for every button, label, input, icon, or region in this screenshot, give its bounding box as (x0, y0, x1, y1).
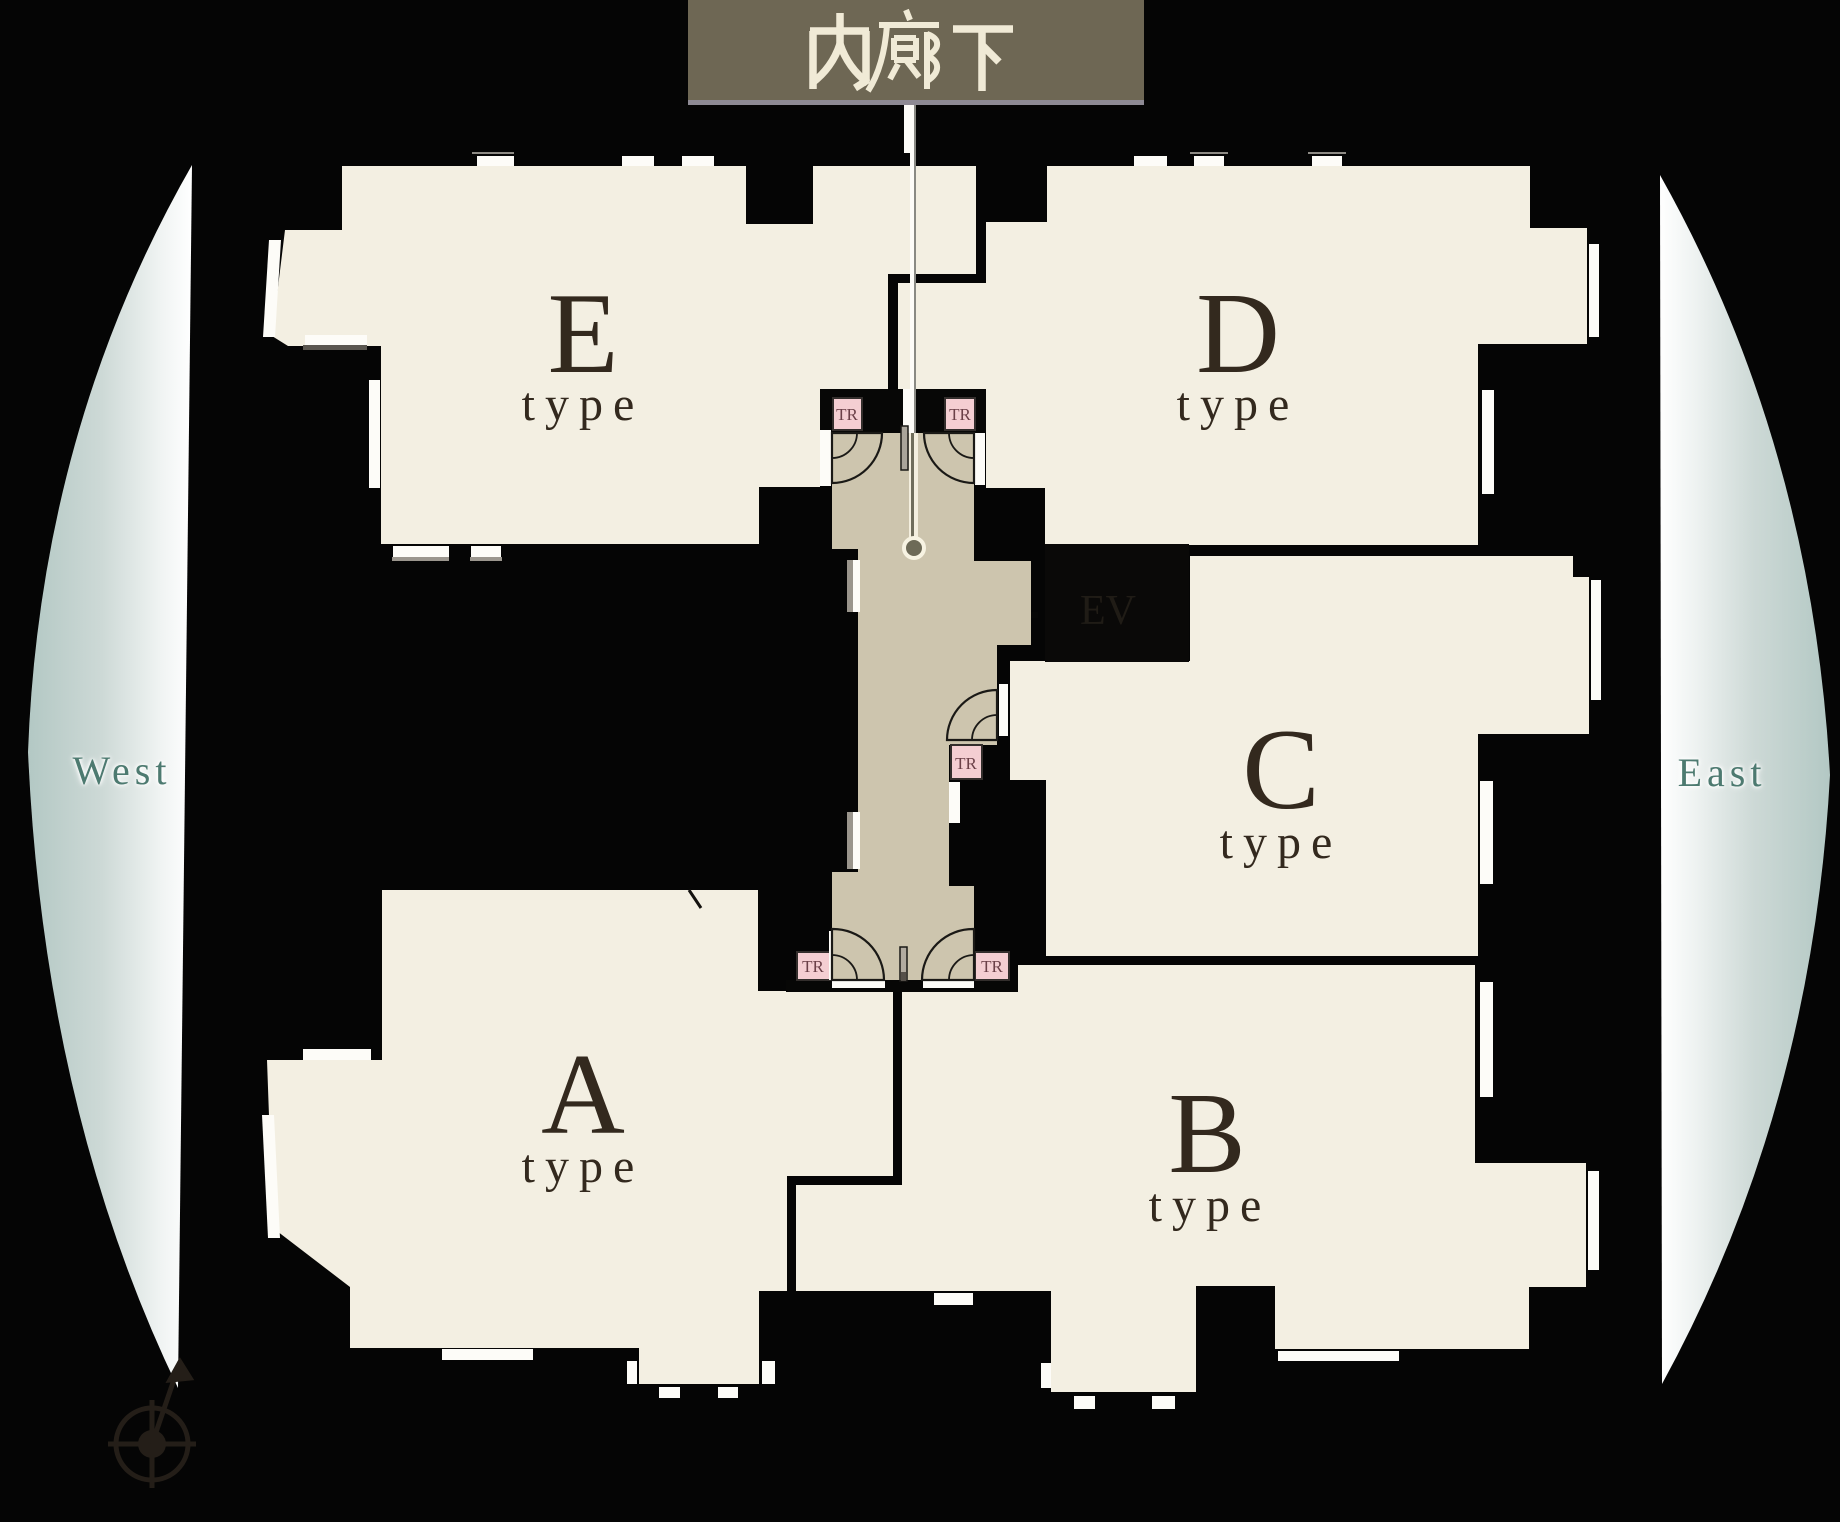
svg-text:EV: EV (1080, 588, 1136, 634)
svg-text:type: type (1177, 378, 1300, 431)
svg-text:TR: TR (955, 754, 977, 773)
svg-text:West: West (73, 748, 172, 793)
svg-text:type: type (1220, 816, 1343, 869)
svg-text:TR: TR (981, 957, 1003, 976)
svg-text:TR: TR (802, 957, 824, 976)
svg-text:type: type (1149, 1179, 1272, 1232)
svg-text:TR: TR (949, 405, 971, 424)
svg-text:East: East (1678, 750, 1767, 795)
svg-text:TR: TR (836, 405, 858, 424)
svg-text:type: type (522, 1140, 645, 1193)
svg-text:C: C (1242, 706, 1319, 834)
svg-text:type: type (522, 378, 645, 431)
